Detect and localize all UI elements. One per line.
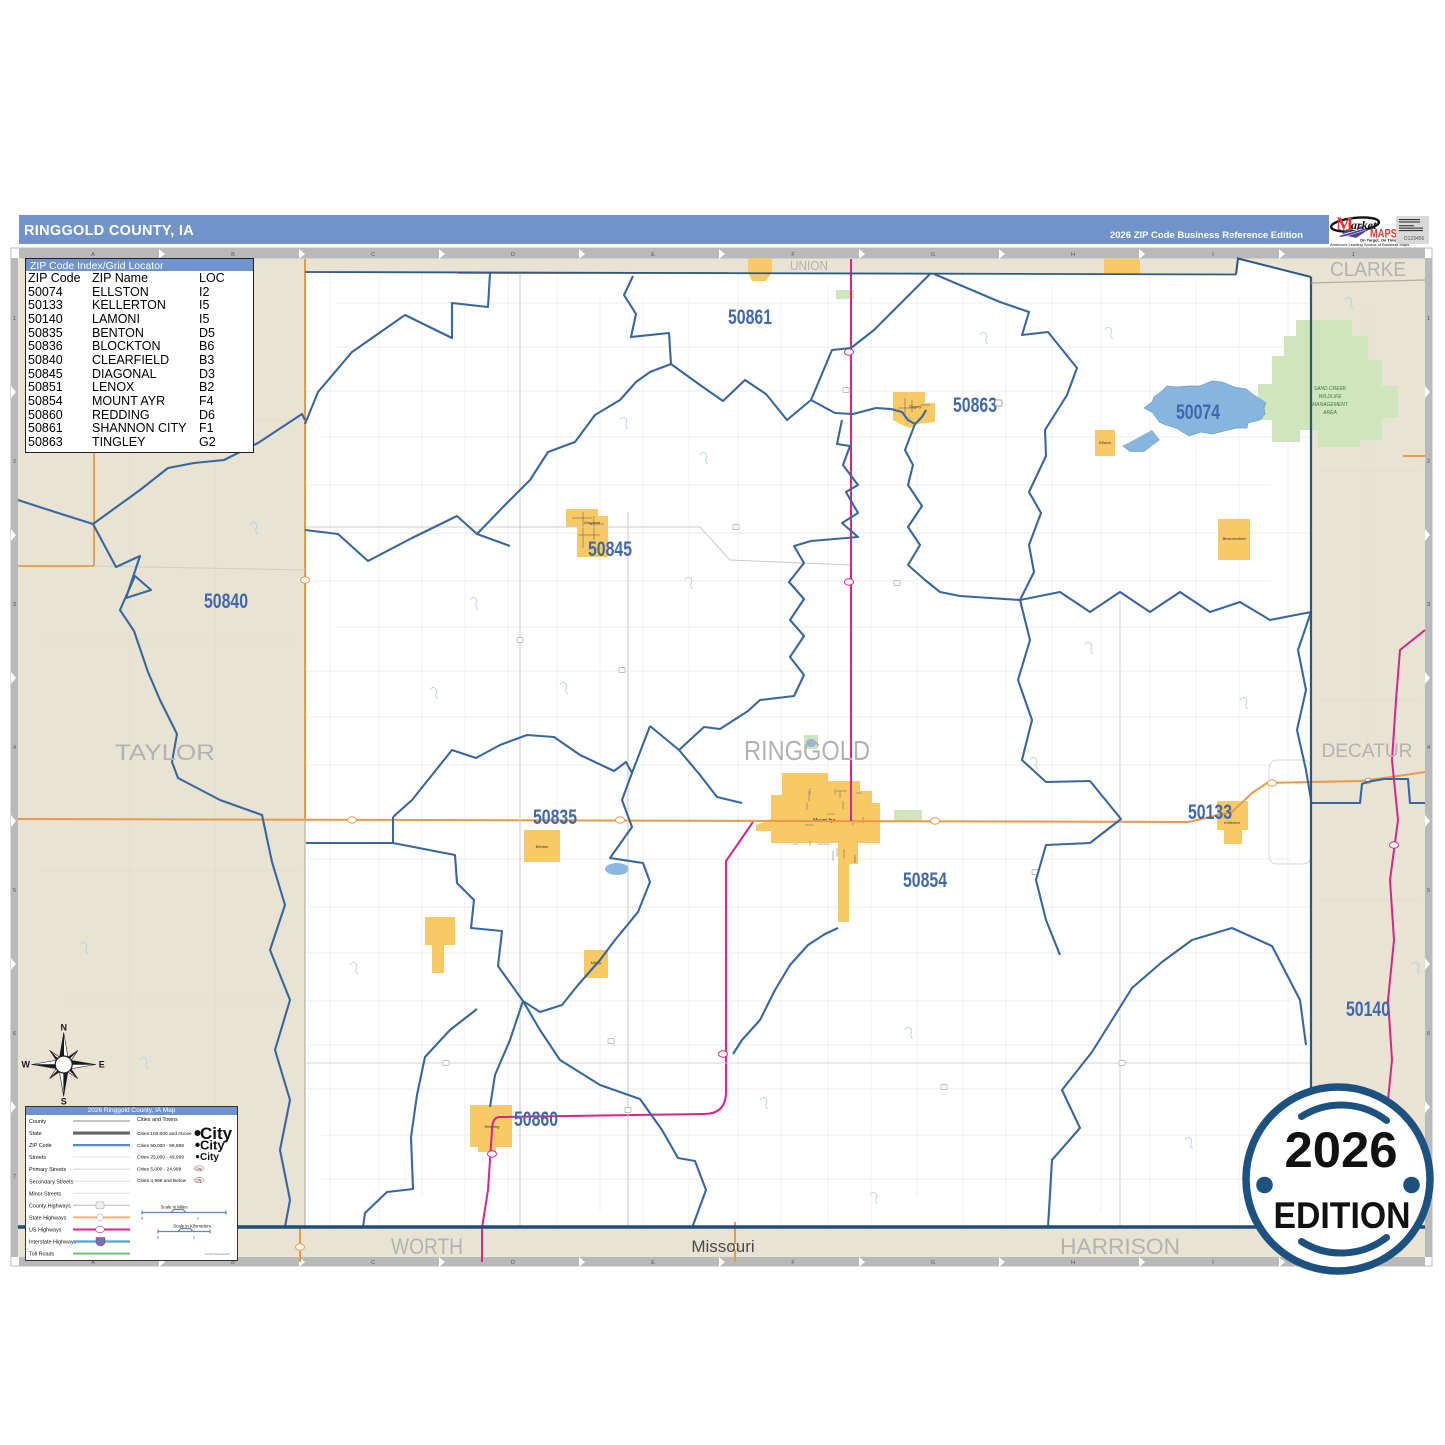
svg-text:CLARKE: CLARKE <box>1330 259 1406 281</box>
svg-text:EDITION: EDITION <box>1274 1195 1411 1236</box>
svg-text:S: S <box>61 1097 67 1107</box>
svg-text:C: C <box>371 252 375 258</box>
svg-text:City: City <box>196 1167 202 1171</box>
svg-text:SAND CREEK: SAND CREEK <box>1314 386 1347 392</box>
svg-text:4: 4 <box>13 745 16 751</box>
svg-text:County: County <box>29 1119 46 1125</box>
svg-text:Benton: Benton <box>536 844 549 849</box>
svg-text:3: 3 <box>1427 602 1430 608</box>
svg-text:2: 2 <box>1427 459 1430 465</box>
svg-text:RINGGOLD: RINGGOLD <box>744 735 870 766</box>
svg-text:E: E <box>651 252 655 258</box>
svg-text:©2026 MarketMAPS: ©2026 MarketMAPS <box>204 1252 230 1256</box>
svg-text:1: 1 <box>1427 316 1430 322</box>
svg-text:Secondary Streets: Secondary Streets <box>29 1179 74 1185</box>
svg-text:G: G <box>931 1260 935 1266</box>
svg-text:DECATUR: DECATUR <box>1322 741 1413 762</box>
svg-text:Tingley: Tingley <box>909 404 923 409</box>
svg-text:E: E <box>99 1060 105 1070</box>
svg-text:Minor Streets: Minor Streets <box>29 1191 61 1197</box>
svg-text:TAYLOR: TAYLOR <box>115 740 215 765</box>
svg-text:Cities 4,999 and Below: Cities 4,999 and Below <box>137 1178 187 1184</box>
svg-text:Ellston: Ellston <box>1099 440 1112 445</box>
svg-text:B: B <box>231 252 235 258</box>
svg-text:50140: 50140 <box>1346 997 1390 1021</box>
svg-text:4: 4 <box>1427 745 1430 751</box>
svg-text:Cities 100,000 and Above: Cities 100,000 and Above <box>137 1131 192 1137</box>
svg-text:State Highways: State Highways <box>29 1215 67 1221</box>
svg-text:3: 3 <box>13 602 16 608</box>
svg-text:City: City <box>196 1179 202 1183</box>
svg-text:Beaconsfield: Beaconsfield <box>1223 536 1247 541</box>
svg-text:Cities 50,000 - 99,999: Cities 50,000 - 99,999 <box>137 1143 184 1149</box>
svg-text:1: 1 <box>193 1236 195 1240</box>
svg-text:50840: 50840 <box>204 589 248 613</box>
svg-text:Cities 25,000 - 49,999: Cities 25,000 - 49,999 <box>137 1155 184 1161</box>
svg-text:Diagonal: Diagonal <box>584 520 600 525</box>
svg-text:1: 1 <box>197 1217 199 1221</box>
svg-text:50863: 50863 <box>953 393 997 417</box>
svg-text:City: City <box>200 1137 225 1152</box>
svg-text:6: 6 <box>1427 1031 1430 1037</box>
svg-text:Primary Streets: Primary Streets <box>29 1167 66 1173</box>
svg-text:Interstate Highways: Interstate Highways <box>29 1240 77 1246</box>
svg-text:D123456: D123456 <box>1404 236 1425 242</box>
svg-text:G: G <box>931 252 935 258</box>
svg-text:A: A <box>91 252 95 258</box>
svg-text:D: D <box>511 252 515 258</box>
svg-text:Toll Roads: Toll Roads <box>29 1252 54 1258</box>
svg-text:Missouri: Missouri <box>691 1237 754 1256</box>
svg-text:5: 5 <box>13 888 16 894</box>
svg-text:5: 5 <box>1427 888 1430 894</box>
svg-text:0: 0 <box>141 1217 143 1221</box>
svg-text:D: D <box>511 1260 515 1266</box>
svg-text:2: 2 <box>13 459 16 465</box>
svg-text:Cities 5,000 - 24,999: Cities 5,000 - 24,999 <box>137 1166 182 1172</box>
svg-text:1: 1 <box>13 316 16 322</box>
svg-text:50133: 50133 <box>1188 800 1232 824</box>
svg-text:7: 7 <box>13 1174 16 1180</box>
svg-text:WORTH: WORTH <box>391 1234 463 1259</box>
svg-text:City: City <box>200 1152 219 1163</box>
svg-text:N: N <box>60 1023 67 1033</box>
svg-text:ZIP Code: ZIP Code <box>29 1143 52 1149</box>
svg-text:50074: 50074 <box>1176 400 1220 424</box>
svg-text:County Highways: County Highways <box>29 1203 71 1209</box>
svg-text:Cities and Towns: Cities and Towns <box>137 1117 178 1123</box>
svg-text:State: State <box>29 1131 42 1137</box>
svg-text:AREA: AREA <box>1322 410 1337 416</box>
svg-text:50835: 50835 <box>533 805 577 829</box>
svg-text:C: C <box>371 1260 375 1266</box>
svg-text:J: J <box>1352 252 1355 258</box>
svg-text:Scale in Kilometers: Scale in Kilometers <box>173 1224 211 1229</box>
svg-text:E: E <box>651 1260 655 1266</box>
svg-text:H: H <box>1071 1260 1075 1266</box>
svg-text:6: 6 <box>13 1031 16 1037</box>
svg-text:UNION: UNION <box>790 258 828 273</box>
svg-text:Scale in Miles: Scale in Miles <box>160 1205 188 1210</box>
svg-text:Streets: Streets <box>29 1155 46 1161</box>
svg-text:50845: 50845 <box>588 537 632 561</box>
svg-text:2026: 2026 <box>1285 1122 1398 1178</box>
svg-text:US Highways: US Highways <box>29 1227 62 1233</box>
svg-text:H: H <box>1071 252 1075 258</box>
svg-text:W: W <box>21 1060 30 1070</box>
svg-text:50861: 50861 <box>728 305 772 329</box>
svg-text:0: 0 <box>157 1236 159 1240</box>
svg-text:WILDLIFE: WILDLIFE <box>1318 394 1342 400</box>
svg-text:HARRISON: HARRISON <box>1060 1234 1180 1259</box>
svg-text:50854: 50854 <box>903 868 947 892</box>
svg-text:50860: 50860 <box>514 1107 558 1131</box>
svg-text:MANAGEMENT: MANAGEMENT <box>1312 402 1349 408</box>
